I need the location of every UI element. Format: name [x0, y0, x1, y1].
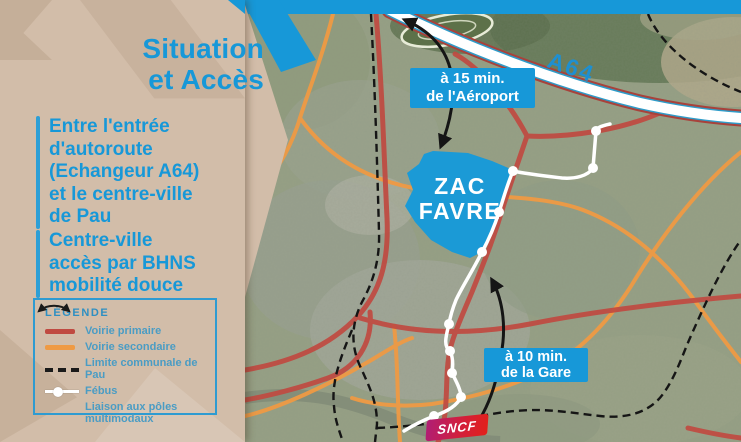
legend-item-secondary-road: Voirie secondaire	[45, 342, 207, 354]
bullet-access-highway: Entre l'entrée d'autoroute (Echangeur A6…	[36, 116, 199, 229]
febus-line-icon	[45, 386, 79, 398]
top-blue-band	[228, 0, 741, 14]
station-time-badge: à 10 min. de la Gare	[484, 348, 588, 382]
bullet-city-access: Centre-ville accès par BHNS mobilité dou…	[36, 230, 196, 298]
slide: Situation et Accès Entre l'entrée d'auto…	[0, 0, 741, 442]
bullet-text: Entre l'entrée d'autoroute (Echangeur A6…	[49, 116, 199, 229]
zac-favre-label: ZAC FAVRE	[408, 174, 512, 224]
map-legend: LÉGENDE Voirie primaire Voirie secondair…	[33, 298, 217, 415]
commune-boundary-icon	[45, 368, 79, 372]
secondary-road-line-icon	[45, 345, 75, 350]
legend-item-commune-boundary: Limite communale de Pau	[45, 358, 207, 381]
airport-time-badge: à 15 min. de l'Aéroport	[410, 68, 535, 108]
bullet-bar	[36, 230, 40, 298]
legend-item-febus: Fébus	[45, 386, 207, 398]
legend-item-primary-road: Voirie primaire	[45, 326, 207, 338]
page-title: Situation et Accès	[28, 33, 264, 95]
bullet-bar	[36, 116, 40, 229]
band-corner-notch	[228, 0, 245, 14]
multimodal-arrow-icon	[35, 300, 73, 316]
primary-road-line-icon	[45, 329, 75, 334]
bullet-text: Centre-ville accès par BHNS mobilité dou…	[49, 230, 196, 298]
legend-item-multimodal: Liaison aux pôles multimodaux	[45, 402, 207, 425]
